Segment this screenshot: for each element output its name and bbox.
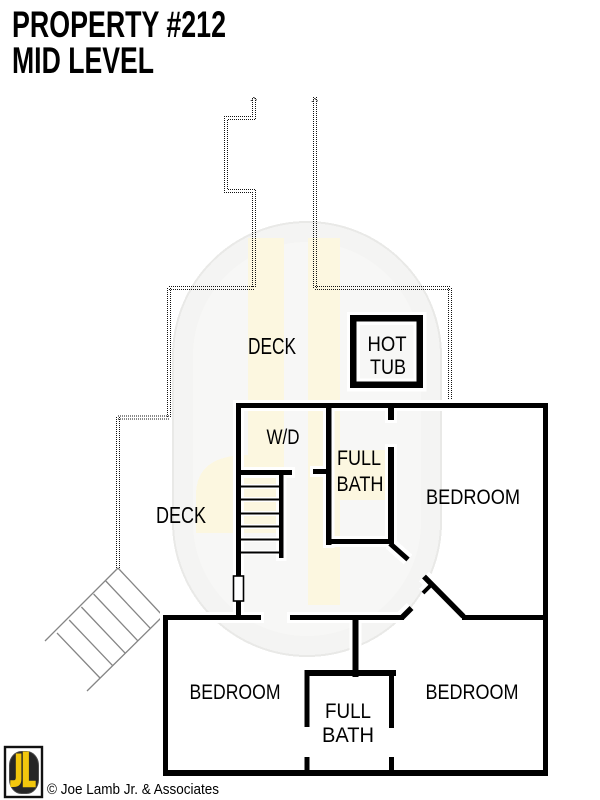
svg-text:HOT: HOT: [368, 333, 407, 356]
svg-text:BATH: BATH: [337, 473, 384, 496]
svg-text:BEDROOM: BEDROOM: [426, 486, 520, 509]
svg-text:DECK: DECK: [156, 502, 207, 528]
svg-text:FULL: FULL: [337, 447, 381, 470]
svg-text:PROPERTY #212: PROPERTY #212: [12, 4, 226, 45]
svg-text:BEDROOM: BEDROOM: [426, 681, 519, 704]
svg-text:MID LEVEL: MID LEVEL: [12, 40, 154, 81]
svg-text:TUB: TUB: [370, 356, 406, 379]
svg-text:BEDROOM: BEDROOM: [190, 681, 281, 704]
svg-text:FULL: FULL: [325, 700, 371, 723]
svg-text:W/D: W/D: [267, 426, 300, 449]
svg-text:BATH: BATH: [322, 724, 374, 747]
svg-text:DECK: DECK: [248, 333, 296, 359]
svg-text:© Joe Lamb Jr. & Associates: © Joe Lamb Jr. & Associates: [47, 782, 219, 798]
